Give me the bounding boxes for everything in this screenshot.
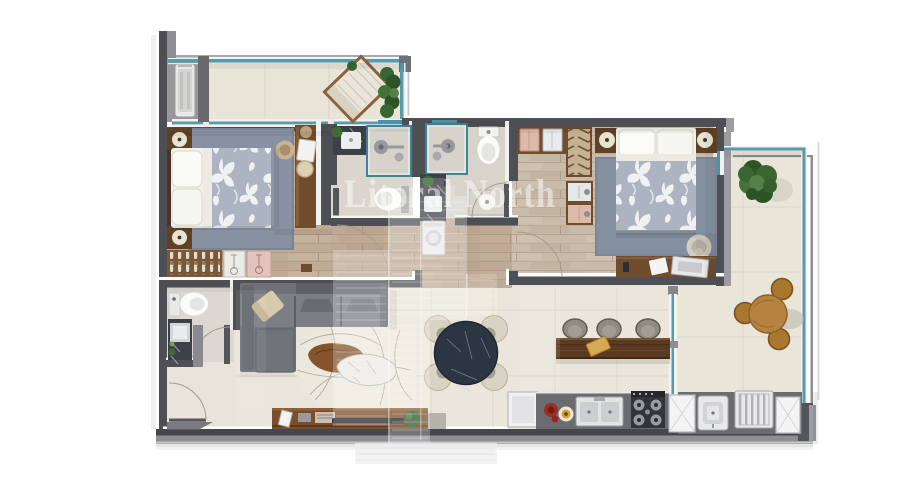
svg-text:Litoral North: Litoral North (344, 171, 556, 216)
